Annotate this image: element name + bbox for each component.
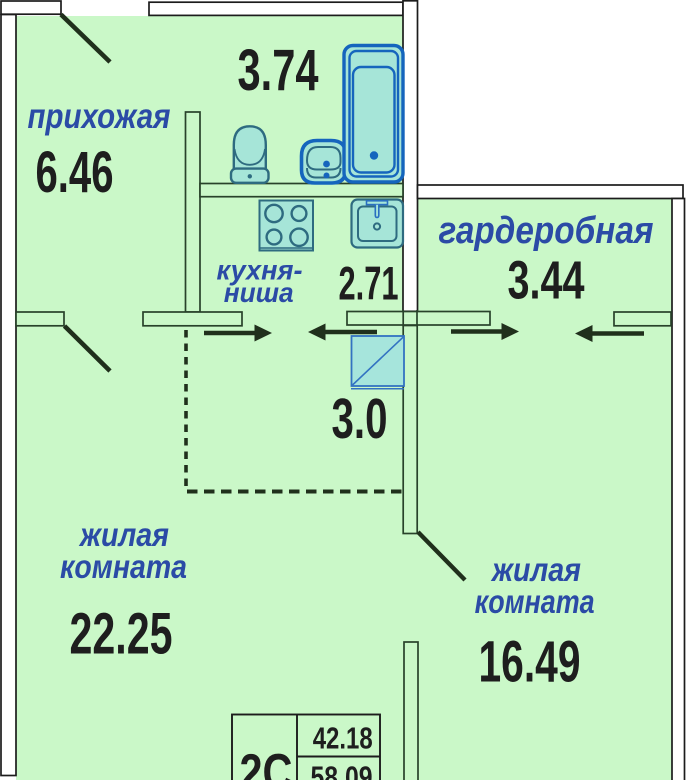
svg-text:комната: комната (60, 548, 187, 585)
svg-text:2.71: 2.71 (339, 257, 399, 310)
svg-text:ниша: ниша (224, 277, 294, 308)
svg-text:комната: комната (475, 583, 595, 620)
svg-text:3.44: 3.44 (508, 251, 585, 311)
svg-text:гардеробная: гардеробная (439, 210, 654, 252)
svg-text:42.18: 42.18 (313, 721, 373, 756)
svg-text:3.74: 3.74 (238, 38, 319, 103)
svg-text:3.0: 3.0 (332, 387, 388, 451)
svg-text:прихожая: прихожая (28, 97, 171, 136)
svg-text:58.09: 58.09 (311, 760, 373, 780)
svg-text:16.49: 16.49 (479, 630, 581, 695)
svg-text:22.25: 22.25 (70, 602, 173, 667)
svg-text:2С: 2С (240, 744, 293, 780)
svg-text:6.46: 6.46 (36, 140, 114, 205)
